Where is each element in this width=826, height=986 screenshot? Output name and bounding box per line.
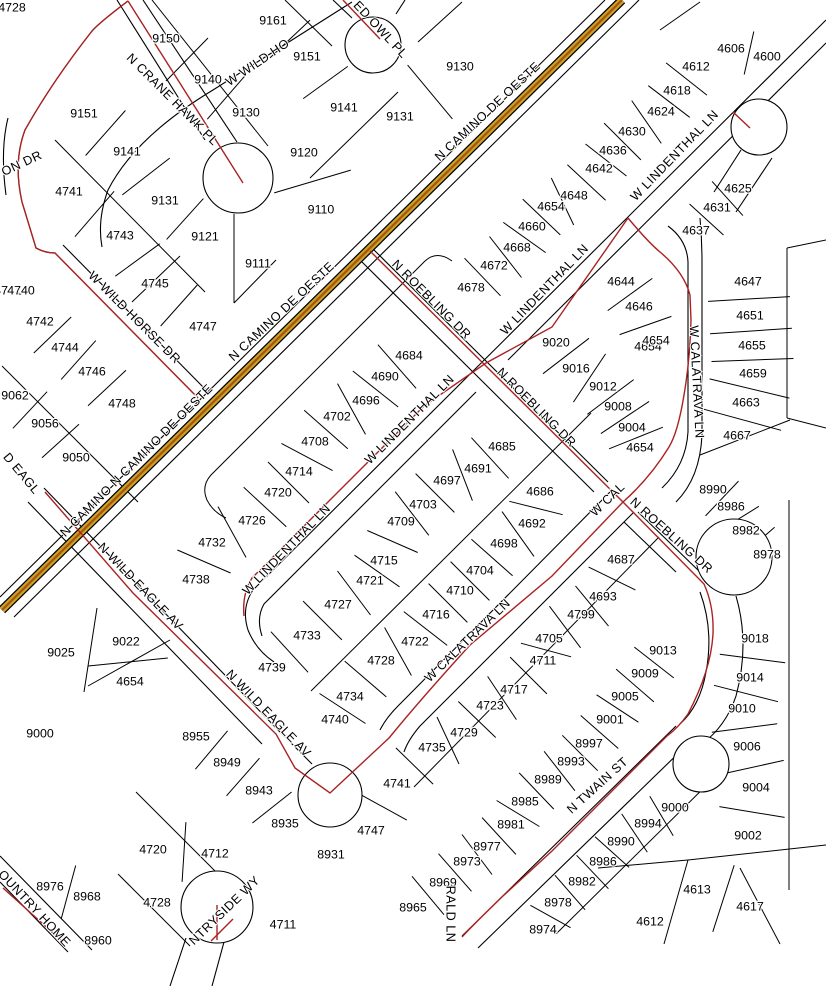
parcel-number-label: 9001 (596, 712, 624, 726)
parcel-number-label: 9130 (232, 105, 260, 119)
parcel-number-label: 4705 (535, 631, 563, 645)
parcel-number-label: 4684 (395, 348, 423, 362)
parcel-line (720, 654, 785, 662)
parcel-number-label: 8974 (529, 922, 557, 936)
parcel-number-label: 4715 (370, 553, 398, 567)
parcel-line (177, 550, 230, 573)
parcel-number-label: 4606 (717, 41, 745, 55)
street-edge-line (3, 118, 8, 195)
street-edge-line (170, 938, 186, 986)
parcel-number-label: 4667 (723, 428, 751, 442)
parcel-line (787, 418, 826, 428)
parcel-line (660, 2, 700, 30)
parcel-line (713, 865, 734, 932)
parcel-line (118, 874, 190, 946)
parcel-number-label: 8931 (317, 847, 345, 861)
parcel-number-label: 8986 (589, 854, 617, 868)
parcel-line (122, 158, 169, 195)
street-name-label: N CAMINO DE OESTE (226, 259, 337, 364)
parcel-number-label: 4711 (270, 917, 297, 931)
parcel-number-label: 4600 (753, 49, 781, 63)
street-edge-line (680, 592, 709, 724)
parcel-number-label: 4690 (371, 369, 399, 383)
parcel-number-label: 4685 (488, 439, 516, 453)
street-name-label: W LINDENTHAL LN (362, 372, 457, 467)
parcel-number-label: 9151 (293, 49, 321, 63)
parcel-number-label: 4651 (736, 308, 764, 322)
parcel-number-label: 9131 (151, 193, 179, 207)
parcel-number-label: 8943 (245, 783, 273, 797)
parcel-line (620, 316, 672, 334)
parcel-number-label: 9121 (191, 229, 219, 243)
parcel-line (712, 359, 794, 362)
parcel-number-label: 4678 (457, 280, 485, 294)
parcel-number-label: 8955 (182, 729, 210, 743)
parcel-number-label: 8960 (84, 933, 112, 947)
parcel-number-label: 9016 (562, 361, 590, 375)
street-name-label: N CRANE HAWK PL (124, 51, 222, 149)
parcel-line (710, 328, 792, 333)
parcel-number-label: 4624 (647, 104, 675, 118)
parcel-number-label: 8968 (73, 889, 101, 903)
parcel-line (708, 297, 790, 302)
parcel-number-label: 4711 (530, 653, 557, 667)
parcel-number-label: 9150 (152, 31, 180, 45)
parcel-line (285, 0, 332, 46)
parcel-line (664, 860, 688, 944)
parcel-number-label: 4687 (607, 552, 635, 566)
parcel-number-label: 4686 (526, 484, 554, 498)
parcel-number-label: 4745 (141, 276, 169, 290)
parcel-number-label: 4691 (464, 461, 492, 475)
parcel-number-label: 4746 (78, 364, 106, 378)
parcel-number-label: 4747 (357, 823, 385, 837)
street-edge-line (28, 502, 262, 744)
parcel-number-label: 4663 (732, 395, 760, 409)
parcel-number-label: 8997 (575, 736, 603, 750)
parcel-number-label: 4655 (738, 338, 766, 352)
parcel-number-label: 9141 (330, 100, 358, 114)
parcel-number-label: 9120 (290, 145, 318, 159)
parcel-number-label: 8982 (732, 523, 760, 537)
parcel-line (714, 685, 778, 701)
parcel-line (702, 409, 781, 431)
street-name-label: N WILD EAGLE AV (223, 667, 314, 760)
parcel-number-label: 4732 (198, 535, 226, 549)
street-edge-line (212, 942, 224, 986)
street-name-label: RALD LN (444, 886, 458, 943)
parcel-line (509, 501, 562, 514)
parcel-number-label: 8990 (607, 834, 635, 848)
parcel-number-label: 4720 (139, 842, 167, 856)
parcel-number-label: 4733 (293, 628, 321, 642)
parcel-number-label: 9111 (245, 256, 271, 270)
parcel-number-label: 4740 (321, 712, 349, 726)
parcel-number-label: 9002 (734, 828, 762, 842)
street-name-label: ON DR (0, 148, 44, 179)
parcel-line (367, 531, 417, 553)
parcel-number-label: 8978 (753, 547, 781, 561)
parcel-number-label: 4703 (409, 497, 437, 511)
cul-de-sac-bulb (203, 143, 273, 213)
parcel-number-label: 4644 (607, 274, 635, 288)
parcel-number-label: 4654 (626, 440, 654, 454)
parcel-number-label: 4704 (466, 563, 494, 577)
parcel-number-label: 4710 (446, 583, 474, 597)
parcel-number-label: 4631 (703, 200, 731, 214)
parcel-line (303, 66, 348, 98)
parcel-number-label: 4726 (238, 513, 266, 527)
parcel-number-label: 4698 (490, 536, 518, 550)
parcel-number-label: 4729 (450, 725, 478, 739)
street-name-label: N ROEBLING DR (389, 257, 474, 342)
parcel-number-label: 4618 (663, 83, 691, 97)
parcel-number-label: 4692 (518, 516, 546, 530)
boundary-line (128, 1, 243, 183)
parcel-number-label: 4613 (683, 882, 711, 896)
parcel-line (182, 822, 186, 882)
parcel-number-label: 4612 (636, 914, 664, 928)
parcel-number-label: 9009 (631, 666, 659, 680)
parcel-number-label: 4728 (0, 0, 26, 14)
parcel-number-label: 9131 (386, 109, 414, 123)
parcel-number-label: 4708 (301, 434, 329, 448)
street-name-label: W WILD HO (223, 36, 292, 89)
parcel-number-label: 9056 (31, 416, 59, 430)
parcel-number-label: 4696 (352, 393, 380, 407)
parcel-number-label: 4617 (736, 899, 764, 913)
parcel-line (787, 240, 826, 248)
parcel-number-label: 9010 (728, 701, 756, 715)
parcel-number-label: 8976 (36, 879, 64, 893)
parcel-line (88, 658, 168, 666)
parcel-number-label: 4748 (108, 396, 136, 410)
parcel-number-label: 4716 (422, 607, 450, 621)
parcel-number-label: 9151 (70, 106, 98, 120)
parcel-number-label: 9141 (113, 144, 141, 158)
parcel-number-label: 4727 (324, 597, 352, 611)
parcel-number-label: 4693 (589, 589, 617, 603)
parcel-number-label: 4642 (585, 161, 613, 175)
parcel-number-label: 8977 (473, 839, 501, 853)
parcel-number-label: 4728 (367, 653, 395, 667)
parcel-number-label: 9000 (26, 726, 54, 740)
parcel-line (418, 2, 462, 42)
parcel-number-label: 9130 (446, 59, 474, 73)
cul-de-sac-bulbs (181, 17, 787, 943)
parcel-map-canvas: 4728916191509151914091309151914191309131… (0, 0, 826, 986)
parcel-number-label: 9140 (194, 72, 222, 86)
parcel-number-label: 9062 (1, 388, 29, 402)
parcel-number-label: 4612 (682, 59, 710, 73)
parcel-number-label: 4697 (433, 473, 461, 487)
street-edge-line (662, 226, 688, 488)
parcel-number-label: 4668 (503, 240, 531, 254)
parcel-number-label: 4654 (642, 333, 670, 347)
parcel-number-label: 8982 (568, 874, 596, 888)
street-name-label: W CALATRAVA LN (687, 325, 707, 439)
parcel-number-label: 4744 (51, 340, 79, 354)
parcel-number-label: 4636 (599, 143, 627, 157)
parcel-number-label: 9022 (112, 634, 140, 648)
parcel-number-label: 4647 (734, 274, 762, 288)
parcel-number-label: 4741 (55, 184, 83, 198)
plat-map: 4728916191509151914091309151914191309131… (0, 0, 826, 986)
parcel-number-label: 4720 (264, 485, 292, 499)
parcel-number-label: 8935 (271, 816, 299, 830)
parcel-number-label: 8978 (544, 895, 572, 909)
parcel-number-label: 8949 (213, 755, 241, 769)
cul-de-sac-bulb (731, 99, 787, 155)
parcel-number-label: 8990 (699, 482, 727, 496)
parcel-number-label: 4728 (143, 895, 171, 909)
parcel-number-label: 8965 (399, 900, 427, 914)
parcel-number-label: 8993 (557, 754, 585, 768)
parcel-number-label: 4709 (387, 514, 415, 528)
street-edge-line (396, 0, 405, 14)
parcel-number-label: 4702 (323, 409, 351, 423)
parcel-number-label: 9020 (542, 335, 570, 349)
parcel-number-label: 4660 (518, 219, 546, 233)
parcel-number-label: 4712 (201, 846, 229, 860)
parcel-number-label: 4735 (418, 740, 446, 754)
parcel-number-label: 9018 (741, 631, 769, 645)
parcel-number-label: 9110 (308, 202, 335, 216)
parcel-number-label: 8994 (634, 816, 662, 830)
parcel-line (55, 140, 205, 292)
parcel-number-label: 4654 (537, 199, 565, 213)
street-name-label: W LINDENTHAL LN (628, 107, 722, 203)
parcel-number-label: 9005 (611, 689, 639, 703)
parcel-number-label: 4714 (285, 464, 313, 478)
parcel-number-label: 4630 (618, 124, 646, 138)
parcel-number-label: 4742 (26, 314, 54, 328)
parcel-number-label: 4659 (739, 366, 767, 380)
parcel-line (84, 608, 97, 692)
street-name-label: D EAGL (0, 450, 42, 497)
parcel-number-label: 4741 (383, 776, 411, 790)
parcel-number-label: 9000 (661, 800, 689, 814)
parcel-number-label: 9006 (733, 739, 761, 753)
parcel-number-label: 9008 (604, 399, 632, 413)
street-edge-line (259, 392, 476, 636)
parcel-number-label: 8973 (453, 854, 481, 868)
parcel-line (115, 244, 159, 276)
parcel-number-label: 9014 (736, 670, 764, 684)
parcel-number-label: 8985 (511, 794, 539, 808)
parcel-line (589, 567, 636, 590)
parcel-number-label: 4747 (189, 319, 217, 333)
parcel-number-label: 9161 (259, 13, 287, 27)
parcel-number-label: 8986 (717, 499, 745, 513)
parcel-line (361, 795, 407, 820)
parcel-number-label: 4646 (625, 299, 653, 313)
parcel-number-label: 4637 (682, 223, 710, 237)
parcel-number-label: 4743 (106, 228, 134, 242)
parcel-line (719, 807, 784, 818)
parcel-number-label: 4739 (258, 660, 286, 674)
parcel-number-label: 8989 (534, 772, 562, 786)
parcel-number-label: 8981 (497, 817, 525, 831)
parcel-line (598, 845, 826, 868)
parcel-number-label: 4625 (724, 181, 752, 195)
cul-de-sac-bulb (673, 736, 729, 792)
parcel-number-label: 4734 (336, 689, 364, 703)
parcel-number-label: 4723 (476, 698, 504, 712)
parcel-number-label: 9004 (742, 780, 770, 794)
street-edge-line (333, 0, 352, 18)
parcel-number-label: 4654 (116, 674, 144, 688)
parcel-number-label: 9025 (47, 645, 75, 659)
parcel-number-label: 9013 (649, 643, 677, 657)
parcel-number-label: 9012 (589, 379, 617, 393)
parcel-number-label: 4721 (356, 573, 384, 587)
parcel-number-label: 9050 (62, 450, 90, 464)
parcel-number-label: 4738 (182, 572, 210, 586)
parcel-number-label: 9004 (618, 420, 646, 434)
street-name-label: N ROEBLING DR (494, 365, 579, 450)
parcel-number-label: 4740 (7, 283, 35, 297)
parcel-number-label: 4799 (567, 607, 595, 621)
parcel-number-label: 4672 (480, 258, 508, 272)
parcel-number-label: 4717 (500, 682, 528, 696)
parcel-line (274, 170, 351, 193)
parcel-number-label: 4722 (401, 634, 429, 648)
